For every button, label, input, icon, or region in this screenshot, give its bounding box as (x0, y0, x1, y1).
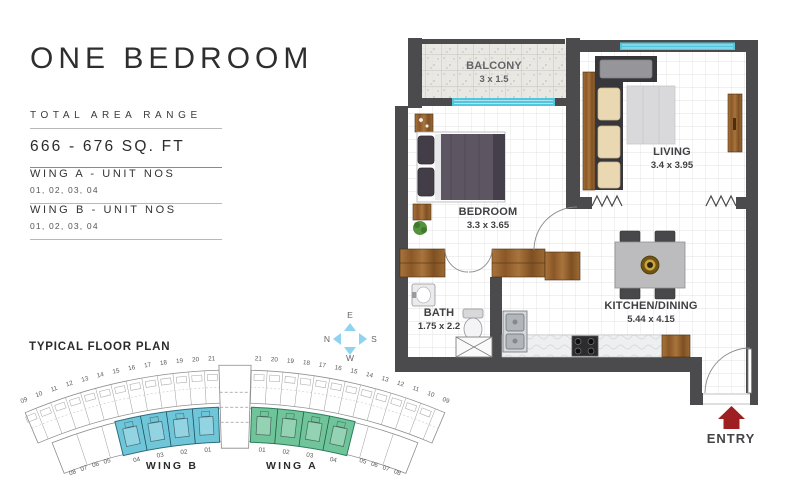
unit-number: 13 (81, 375, 90, 384)
bath-dims: 1.75 x 2.2 (418, 321, 460, 332)
unit-number: 20 (271, 356, 279, 364)
wing-a-units: 01, 02, 03, 04 (30, 185, 222, 204)
unit-number: 03 (306, 452, 315, 460)
area-range-label: TOTAL AREA RANGE (30, 110, 222, 129)
dining-chair (655, 231, 675, 242)
dining-chair (655, 288, 675, 299)
unit-number: 07 (381, 464, 390, 473)
balcony-railing (422, 39, 565, 44)
unit-number: 12 (65, 380, 74, 389)
bedroom-label: BEDROOM (459, 206, 518, 218)
nightstand (413, 204, 431, 220)
sofa-console (583, 72, 595, 190)
dining-chair (620, 288, 640, 299)
unit-number: 18 (160, 359, 168, 367)
unit-number: 21 (255, 355, 263, 362)
unit-number: 14 (96, 371, 105, 380)
kitchen-dining-dims: 5.44 x 4.15 (627, 314, 675, 325)
balcony-dims: 3 x 1.5 (479, 74, 509, 85)
wing-a-block: WING A - UNIT NOS 01, 02, 03, 04 (30, 168, 222, 204)
unit-number: 06 (370, 461, 379, 470)
unit-number: 19 (176, 357, 184, 365)
unit-number: 04 (133, 456, 142, 464)
wing-a-label: WING A - UNIT NOS (30, 168, 222, 180)
unit-number: 09 (20, 396, 30, 405)
wing-b-block: WING B - UNIT NOS 01, 02, 03, 04 (30, 204, 222, 240)
wing-a-caption: WING A (266, 460, 318, 472)
bath-label: BATH (424, 307, 455, 319)
unit-number: 15 (350, 367, 359, 375)
wardrobe (545, 252, 580, 280)
compass-east-label: E (347, 310, 353, 320)
pillow (418, 168, 434, 196)
unit-number: 19 (287, 357, 295, 365)
entry-arrow-icon (718, 406, 745, 429)
balcony-label: BALCONY (466, 60, 522, 72)
pillow (418, 136, 434, 164)
unit-number: 12 (396, 380, 405, 389)
compass-arrows (333, 323, 367, 355)
balcony-sliding-window (452, 98, 555, 106)
area-range-value: 666 - 676 SQ. FT (30, 129, 222, 168)
compass-arrow-right (359, 333, 367, 345)
wing-b-label: WING B - UNIT NOS (30, 204, 222, 216)
unit-number: 08 (393, 468, 402, 477)
entry-door-leaf (748, 349, 752, 393)
unit-number: 04 (329, 456, 338, 464)
compass-south-label: S (371, 334, 377, 344)
unit-number: 07 (80, 464, 89, 473)
unit-number: 09 (441, 396, 451, 405)
wing-b-units: 01, 02, 03, 04 (30, 221, 222, 240)
unit-number: 14 (365, 371, 374, 380)
typical-floor-plan-diagram: 0910111213141516171819202121201918171615… (0, 352, 462, 500)
unit-number: 18 (302, 359, 310, 367)
unit-number: 16 (128, 364, 137, 372)
compass-arrow-left (333, 333, 341, 345)
unit-number: 01 (258, 447, 266, 454)
unit-number: 11 (412, 385, 421, 394)
bedroom-dims: 3.3 x 3.65 (467, 220, 510, 231)
unit-number: 10 (35, 390, 45, 399)
wing-b-caption: WING B (146, 460, 198, 472)
unit-number: 05 (358, 457, 367, 466)
unit-number: 02 (180, 448, 188, 456)
unit-number: 20 (192, 356, 200, 364)
unit-number: 10 (426, 390, 436, 399)
unit-number: 03 (156, 452, 165, 460)
unit-number: 15 (112, 367, 121, 375)
living-window (620, 43, 735, 51)
living-dims: 3.4 x 3.95 (651, 160, 694, 171)
unit-number: 17 (144, 361, 153, 369)
rug (627, 86, 675, 144)
dining-chair (620, 231, 640, 242)
nightstand (415, 114, 433, 132)
unit-number: 05 (103, 457, 112, 466)
toilet (463, 309, 483, 318)
entry-label: ENTRY (707, 431, 756, 446)
unit-number: 17 (318, 361, 327, 369)
area-range-block: TOTAL AREA RANGE 666 - 676 SQ. FT (30, 110, 222, 168)
unit-number: 16 (334, 364, 343, 372)
kitchen-cabinet (662, 335, 690, 357)
kitchen-dining-label: KITCHEN/DINING (604, 300, 697, 312)
compass-arrow-up (344, 323, 356, 331)
compass-north-label: N (324, 334, 330, 344)
unit-number: 13 (381, 375, 390, 384)
unit-number: 11 (50, 385, 59, 394)
page: ONE BEDROOM TOTAL AREA RANGE 666 - 676 S… (0, 0, 800, 500)
unit-number: 06 (91, 460, 100, 469)
living-label: LIVING (653, 146, 691, 158)
unit-number: 21 (208, 355, 216, 362)
core-connector (219, 365, 251, 448)
unit-number: 01 (204, 447, 212, 454)
page-title: ONE BEDROOM (30, 42, 313, 76)
unit-number: 08 (68, 468, 77, 477)
unit-number: 02 (282, 448, 290, 456)
